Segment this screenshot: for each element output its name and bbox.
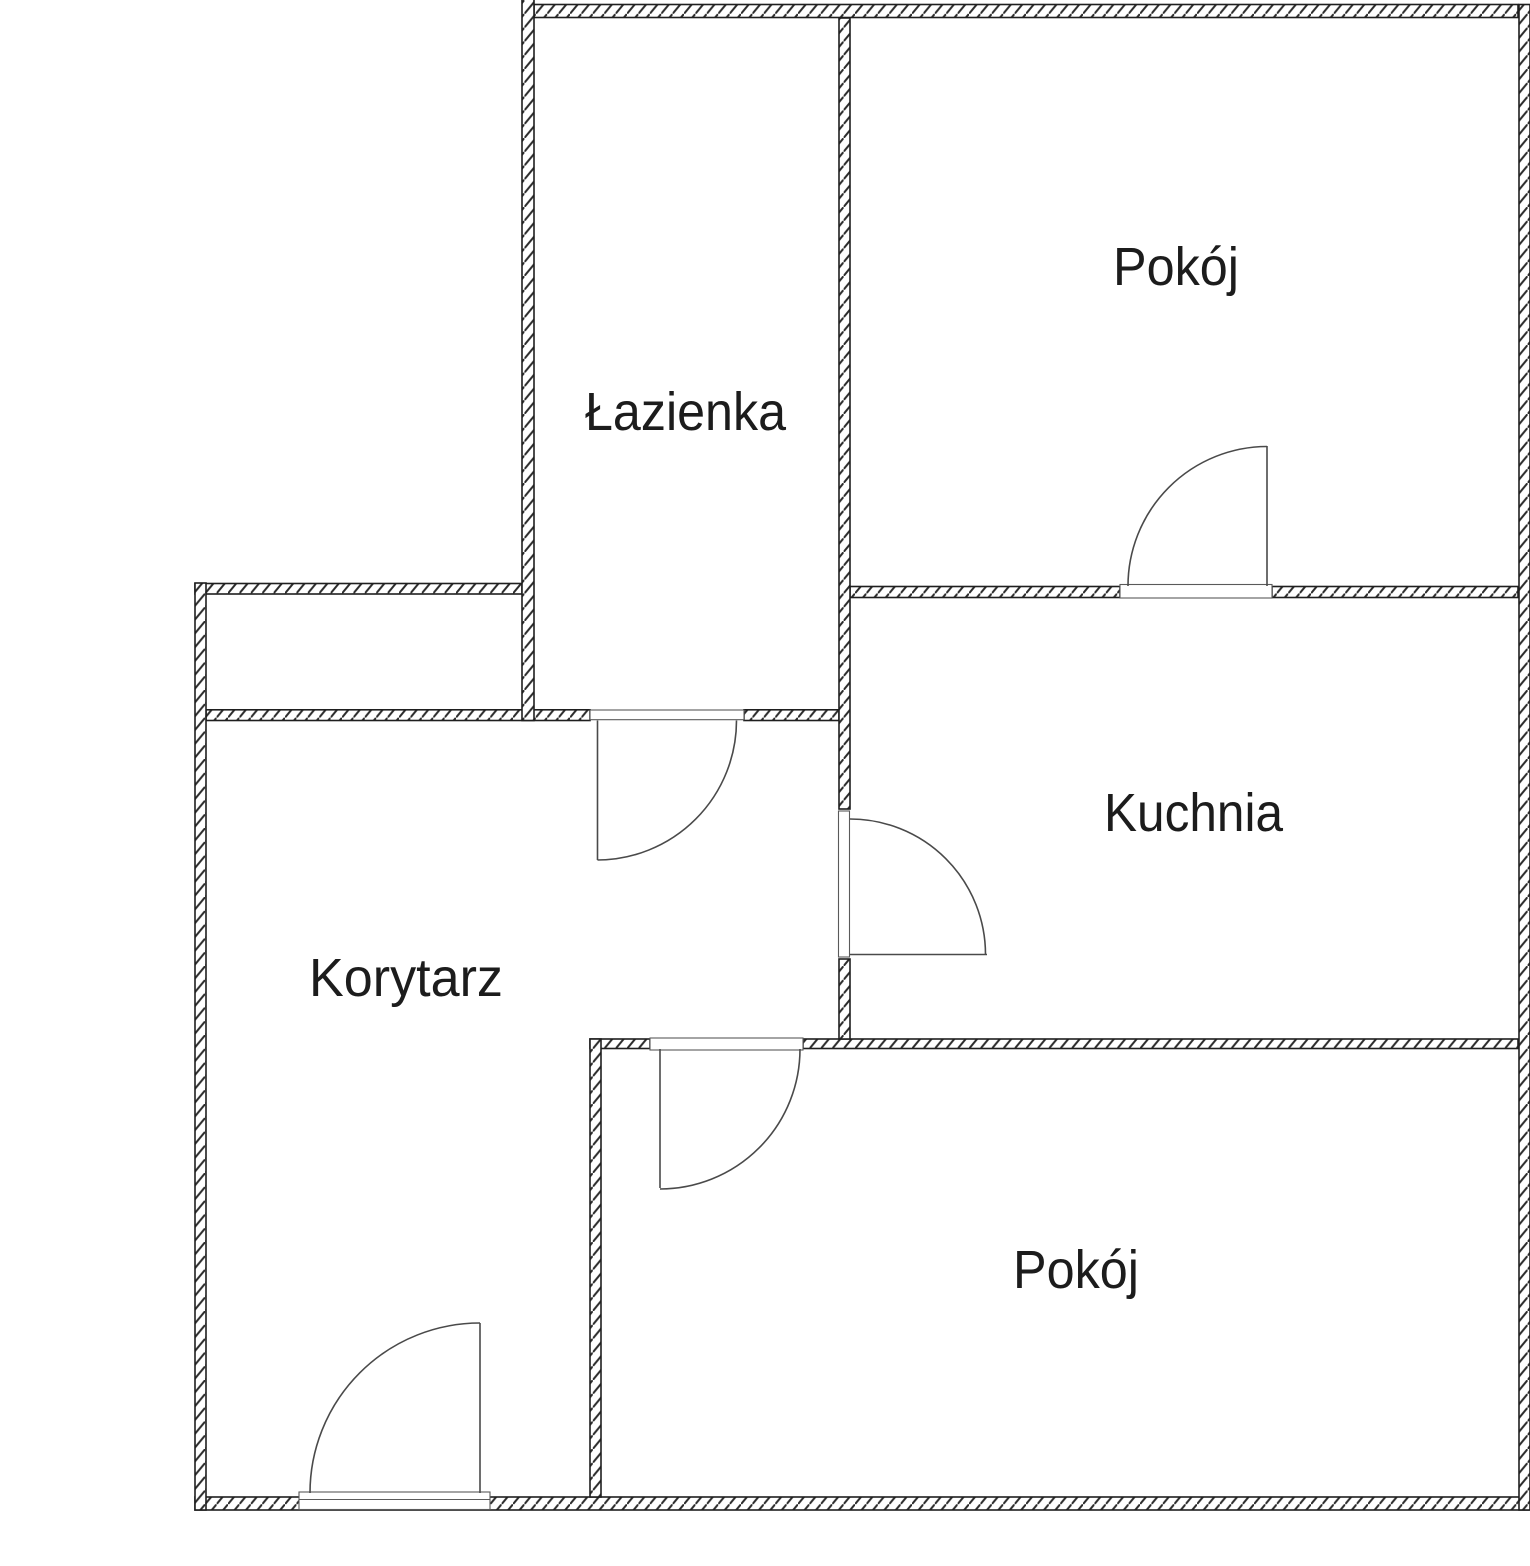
svg-text:Korytarz: Korytarz (309, 948, 503, 1008)
svg-text:Łazienka: Łazienka (585, 382, 787, 442)
svg-text:Pokój: Pokój (1113, 237, 1239, 297)
svg-text:Pokój: Pokój (1013, 1240, 1139, 1300)
svg-text:Kuchnia: Kuchnia (1104, 783, 1284, 843)
